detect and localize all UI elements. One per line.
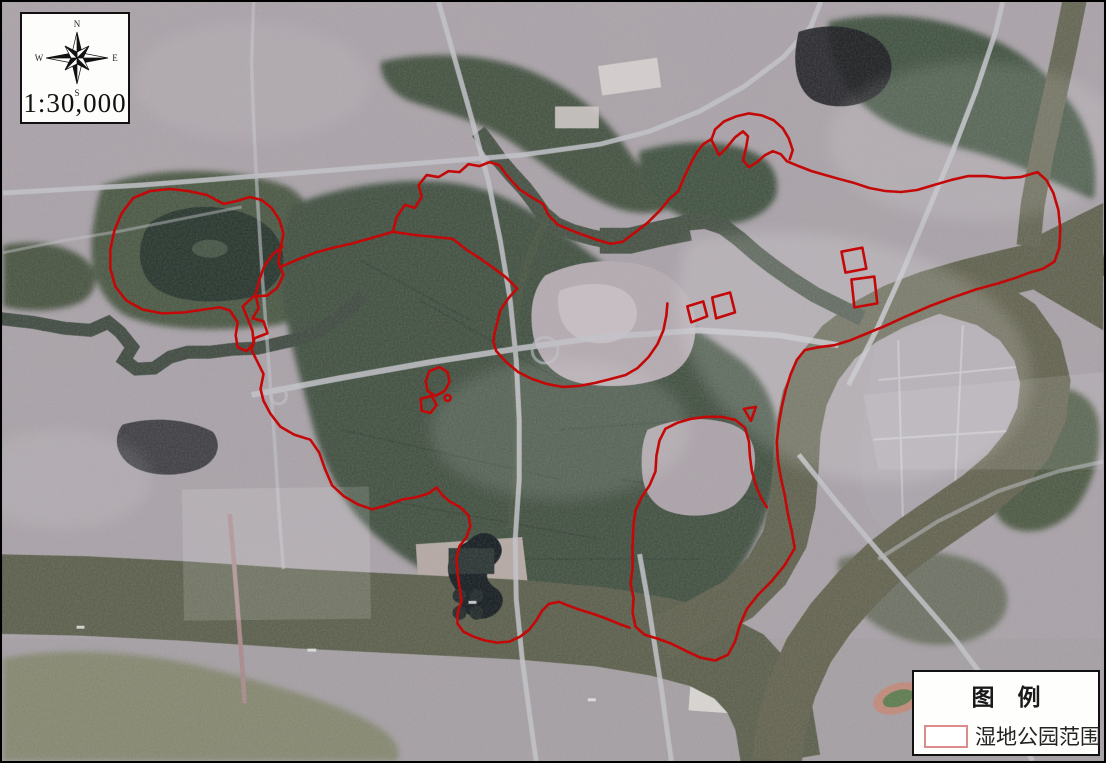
wetland-boundary-swatch [924,725,968,748]
compass-west-label: W [35,53,44,63]
wetland-park-map-page: N E S W 1:30,000 图 例 湿地公园范围 [0,0,1106,763]
legend-box: 图 例 湿地公园范围 [912,670,1100,756]
map-scale-label: 1:30,000 [22,88,128,119]
legend-title: 图 例 [914,678,1098,712]
legend-item: 湿地公园范围 [924,721,1098,751]
legend-item-label: 湿地公园范围 [975,721,1101,751]
map-frame: N E S W 1:30,000 图 例 湿地公园范围 [0,0,1106,763]
compass-east-label: E [112,53,118,63]
compass-scale-box: N E S W 1:30,000 [20,12,130,124]
satellite-imagery [2,2,1104,761]
compass-north-label: N [74,19,81,29]
image-grain [3,2,1103,761]
